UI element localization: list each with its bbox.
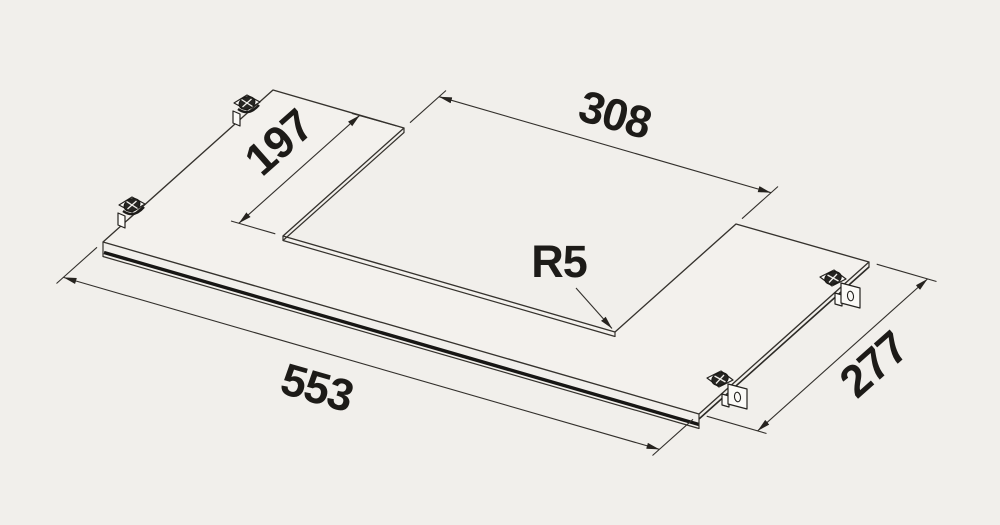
extension-line xyxy=(742,187,778,219)
radius-label-r5: R5 xyxy=(531,236,587,287)
extension-line xyxy=(653,419,694,455)
extension-line xyxy=(410,91,446,123)
clip-plate xyxy=(728,384,747,409)
dimension-label-553: 553 xyxy=(275,353,358,422)
extension-line xyxy=(707,416,767,433)
clip-leg xyxy=(118,213,125,228)
clip-plate xyxy=(841,283,860,308)
glass-panel-top-surface xyxy=(103,90,869,414)
dimension-cutout-width: 308 xyxy=(410,80,778,219)
dimension-drawing-canvas: 197 308 553 277 R5 xyxy=(0,0,1000,525)
clip-leg xyxy=(233,111,240,126)
technical-drawing: 197 308 553 277 R5 xyxy=(0,0,1000,525)
dimension-label-277: 277 xyxy=(830,321,918,407)
extension-line xyxy=(57,247,98,283)
